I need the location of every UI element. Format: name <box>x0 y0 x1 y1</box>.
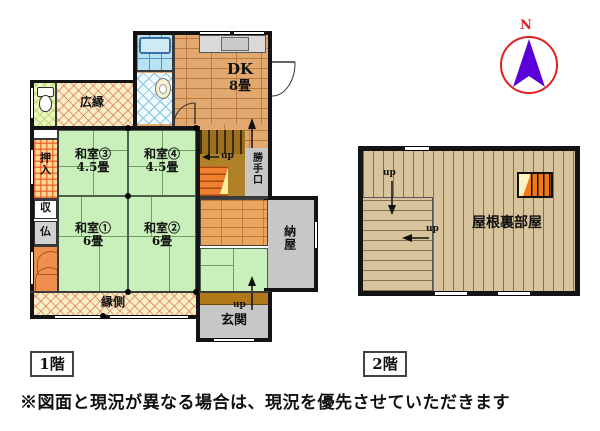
window <box>30 88 34 118</box>
genkan-up-label: up <box>233 300 246 310</box>
closet-oshiire-label: 押入 <box>39 152 51 176</box>
naya-wall-bottom <box>264 288 318 292</box>
wall <box>137 70 172 72</box>
wall <box>34 198 57 200</box>
room-dk-size: 8畳 <box>229 79 251 94</box>
room-washitsu2-label: 和室② 6畳 <box>132 222 192 247</box>
floor2-staircase <box>363 197 433 291</box>
room-washitsu1-label: 和室① 6畳 <box>63 222 123 247</box>
window <box>200 31 230 35</box>
window <box>110 315 188 319</box>
kitchen-sink-unit <box>221 37 249 51</box>
wall <box>268 292 272 342</box>
room-washitsu3-label: 和室③ 4.5畳 <box>63 148 123 173</box>
floor2-left-arrow-icon <box>402 232 430 244</box>
disclaimer-text: ※図面と現況が異なる場合は、現況を優先させていただきます <box>20 388 510 413</box>
floorplan-canvas: N DK 8畳 広縁 押入 収 仏 和室③ 4.5畳 <box>0 0 600 431</box>
room-hiroen-label: 広縁 <box>68 96 116 109</box>
room-naya-label: 納屋 <box>283 225 296 251</box>
wall <box>55 83 57 126</box>
genkan-door <box>214 338 254 342</box>
room-dk-name: DK <box>227 60 253 78</box>
washroom-door-arc-icon <box>173 102 197 126</box>
post <box>125 125 131 131</box>
floor2-up-label-top: up <box>383 168 396 178</box>
window <box>498 291 530 296</box>
attic-hatch-rungs <box>531 174 551 196</box>
room-attic-label: 屋根裏部屋 <box>432 216 582 231</box>
window <box>30 150 34 184</box>
room-washitsu1-size: 6畳 <box>83 234 103 248</box>
room-washitsu3-size: 4.5畳 <box>77 160 110 174</box>
window <box>55 315 103 319</box>
room-washitsu4-label: 和室④ 4.5畳 <box>132 148 192 173</box>
wall <box>34 245 57 247</box>
floor1-tag: 1階 <box>30 351 74 377</box>
room-washitsu2-size: 6畳 <box>152 234 172 248</box>
closet-tokonoma <box>34 247 57 292</box>
naya-window <box>314 222 318 248</box>
genkan-up-arrow-icon <box>246 276 258 312</box>
window <box>234 31 264 35</box>
post <box>125 193 131 199</box>
post <box>100 313 106 319</box>
wall <box>196 126 200 342</box>
wall <box>30 126 200 130</box>
wall <box>30 291 270 293</box>
attic-hatch-flame <box>523 176 530 196</box>
wall <box>30 80 137 83</box>
compass-needle-icon <box>500 36 558 94</box>
washroom-sink-bowl <box>159 84 167 94</box>
post <box>193 289 199 295</box>
naya-wall-top <box>264 196 318 200</box>
altar-butsuma-label: 仏 <box>36 226 55 238</box>
wall <box>133 31 137 126</box>
wall <box>200 196 268 199</box>
wall <box>57 130 59 292</box>
post <box>125 289 131 295</box>
post <box>193 125 199 131</box>
staircase-up-label: up <box>221 151 234 161</box>
window <box>405 146 429 151</box>
tokonoma-arc <box>35 267 57 292</box>
room-woodfloor <box>200 199 268 246</box>
wall <box>268 31 272 200</box>
room-genkan-label: 玄関 <box>207 314 261 328</box>
room-katteguchi-label: 勝手口 <box>250 152 261 185</box>
window <box>30 252 34 284</box>
window <box>435 291 467 296</box>
staircase-left-arrow-icon <box>202 152 220 162</box>
dk-entry-door-arc-icon <box>271 60 298 98</box>
closet-storage-label: 収 <box>36 202 55 214</box>
compass: N <box>498 18 558 98</box>
wall <box>34 138 57 140</box>
room-engawa-label: 縁側 <box>88 296 138 309</box>
bathtub <box>139 37 171 54</box>
staircase-lower-flame <box>220 168 228 194</box>
room-dk-label: DK 8畳 <box>210 62 270 94</box>
floor2-tag: 2階 <box>363 351 407 377</box>
staircase-1f <box>200 130 245 196</box>
compass-north-label: N <box>520 18 532 33</box>
toilet-bowl <box>39 95 52 112</box>
room-washitsu4-size: 4.5畳 <box>146 160 179 174</box>
attic-hatch <box>517 172 553 198</box>
floor2-down-arrow-icon <box>386 181 398 215</box>
